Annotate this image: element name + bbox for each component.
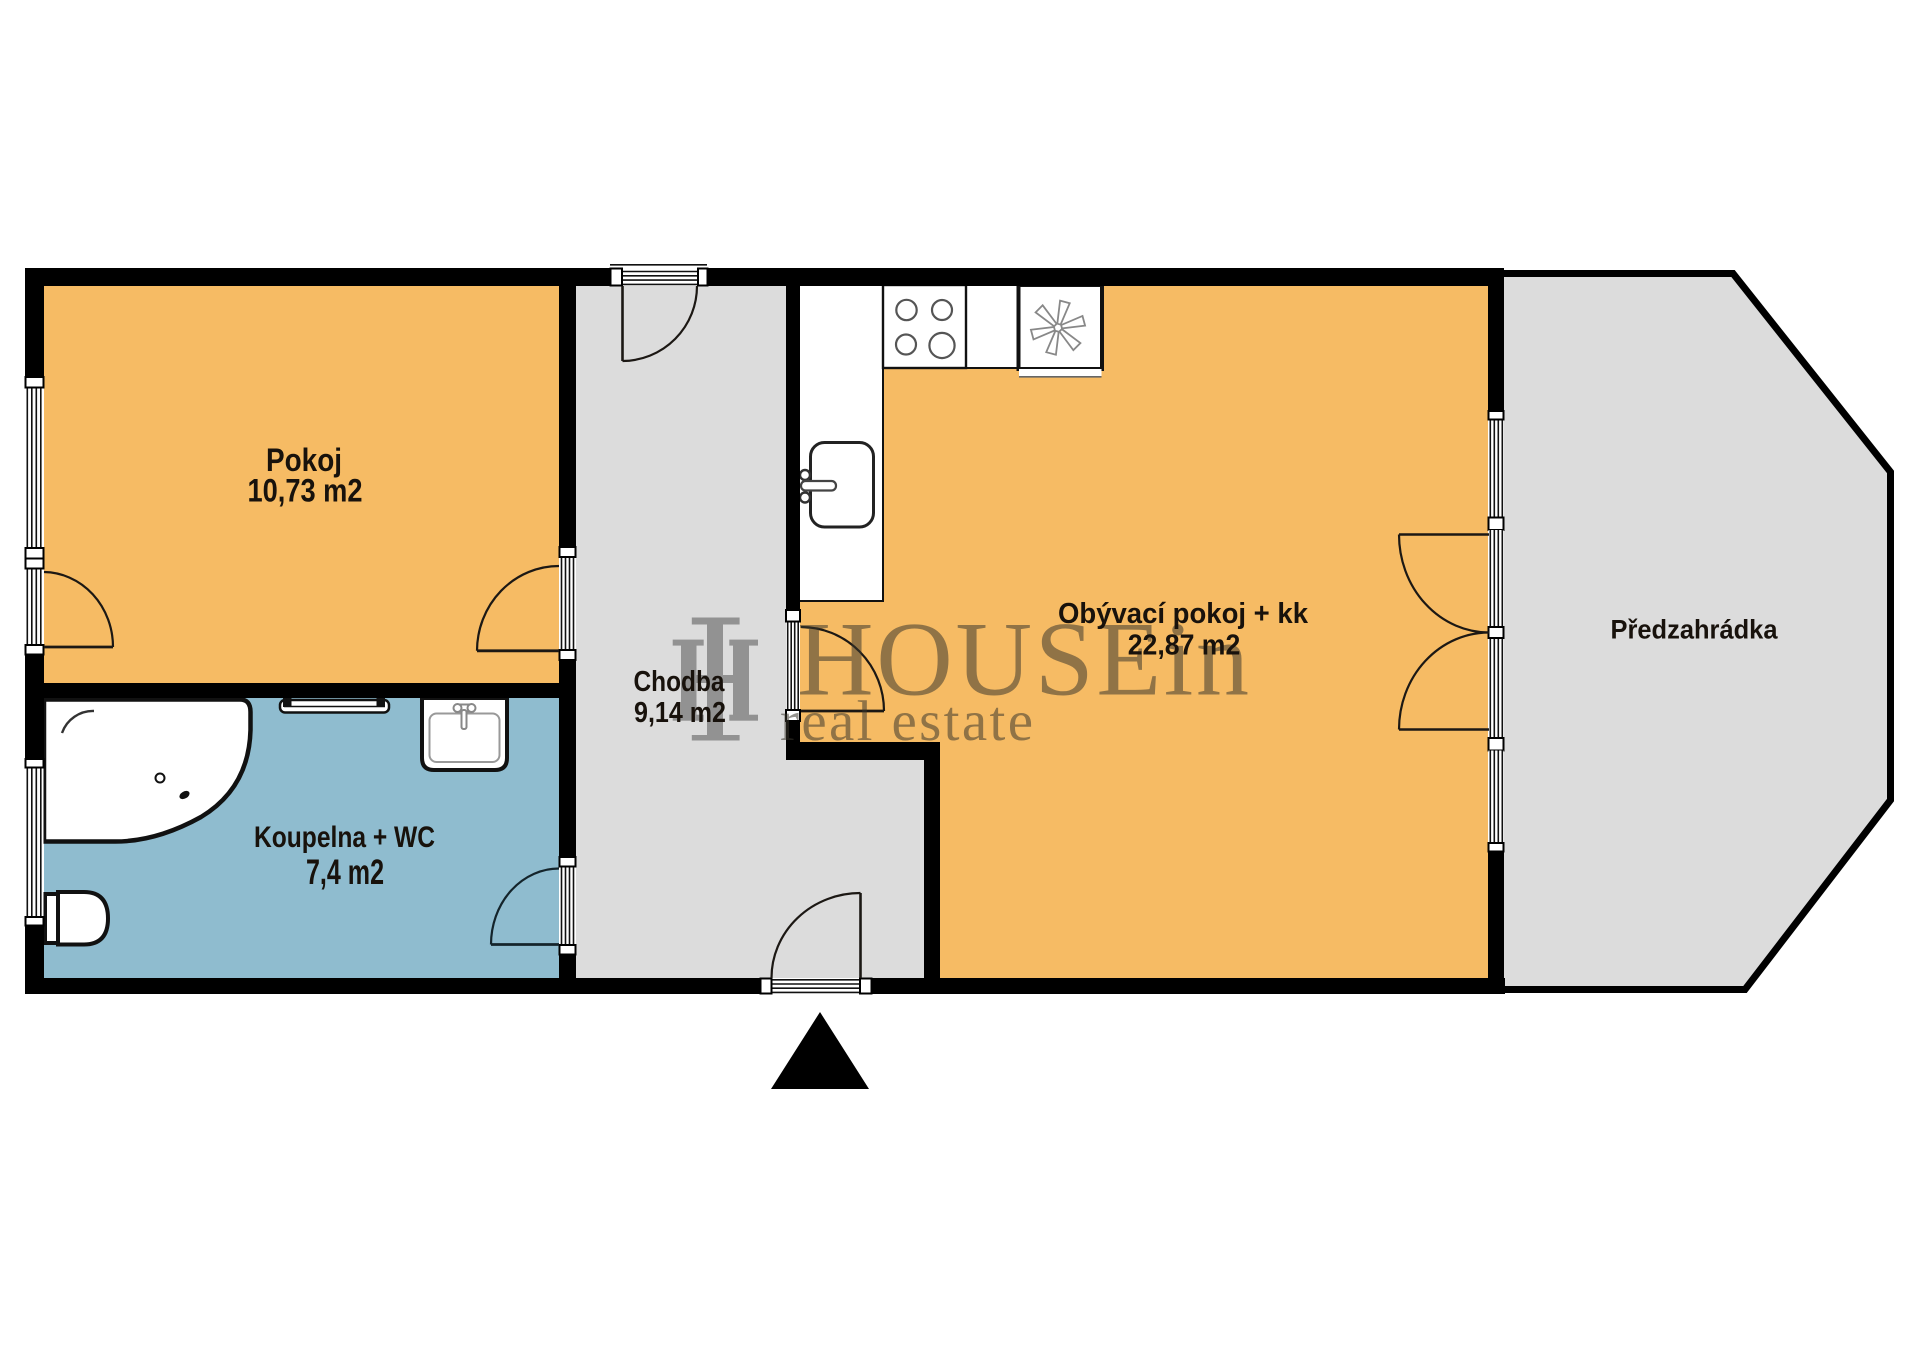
svg-text:7,4 m2: 7,4 m2	[306, 853, 384, 892]
svg-text:Koupelna + WC: Koupelna + WC	[254, 821, 435, 854]
svg-text:real estate: real estate	[780, 690, 1033, 753]
svg-text:Obývací pokoj + kk: Obývací pokoj + kk	[1058, 598, 1309, 630]
svg-text:10,73 m2: 10,73 m2	[248, 473, 363, 509]
svg-text:Chodba: Chodba	[634, 666, 726, 698]
svg-text:9,14 m2: 9,14 m2	[634, 697, 726, 729]
svg-text:22,87 m2: 22,87 m2	[1128, 629, 1241, 661]
svg-text:Předzahrádka: Předzahrádka	[1611, 614, 1779, 644]
